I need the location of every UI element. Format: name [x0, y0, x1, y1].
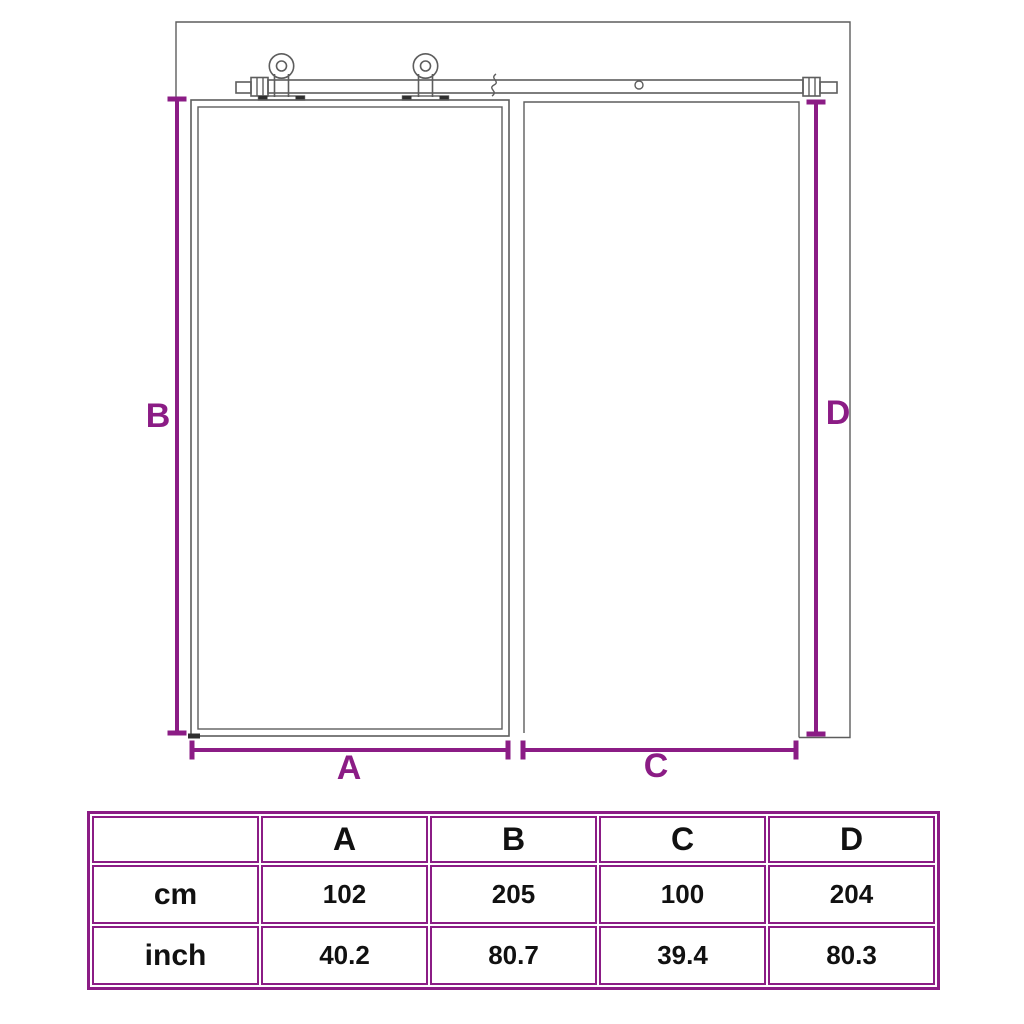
- table-header-c: C: [599, 816, 766, 863]
- dim-label-a: A: [337, 751, 362, 785]
- floor-guide: [188, 734, 200, 739]
- dim-label-c: C: [644, 749, 669, 783]
- roller-wheel-icon: [413, 54, 437, 78]
- dimensions-table: A B C D cm 102 205 100 204 inch 40.2 80.…: [87, 811, 940, 990]
- cell-cm-c: 100: [599, 865, 766, 924]
- table-header-b: B: [430, 816, 597, 863]
- rail-end-cap-left: [236, 78, 268, 97]
- dimension-line-b: [168, 99, 187, 733]
- cell-cm-d: 204: [768, 865, 935, 924]
- cell-cm-b: 205: [430, 865, 597, 924]
- dim-label-b: B: [146, 399, 171, 433]
- wall-outline: [176, 22, 850, 738]
- table-header-row: A B C D: [92, 816, 935, 863]
- table-row-cm: cm 102 205 100 204: [92, 865, 935, 924]
- page: A B C D A B C D cm 102 205 100 204: [0, 0, 1024, 1024]
- row-label-cm: cm: [92, 865, 259, 924]
- door-panel: [188, 100, 509, 739]
- rail-hole: [635, 81, 643, 89]
- doorway-opening: [524, 102, 799, 738]
- cell-inch-d: 80.3: [768, 926, 935, 985]
- cell-cm-a: 102: [261, 865, 428, 924]
- cell-inch-a: 40.2: [261, 926, 428, 985]
- roller-wheel-icon: [269, 54, 293, 78]
- cell-inch-b: 80.7: [430, 926, 597, 985]
- dimension-line-d: [807, 102, 826, 734]
- roller-axle-icon: [277, 61, 287, 71]
- table-header-a: A: [261, 816, 428, 863]
- dim-label-d: D: [826, 396, 851, 430]
- table-header-d: D: [768, 816, 935, 863]
- row-label-inch: inch: [92, 926, 259, 985]
- rail: [236, 74, 837, 96]
- table-row-inch: inch 40.2 80.7 39.4 80.3: [92, 926, 935, 985]
- rail-end-cap-right: [803, 78, 837, 97]
- table-corner-cell: [92, 816, 259, 863]
- roller-axle-icon: [421, 61, 431, 71]
- cell-inch-c: 39.4: [599, 926, 766, 985]
